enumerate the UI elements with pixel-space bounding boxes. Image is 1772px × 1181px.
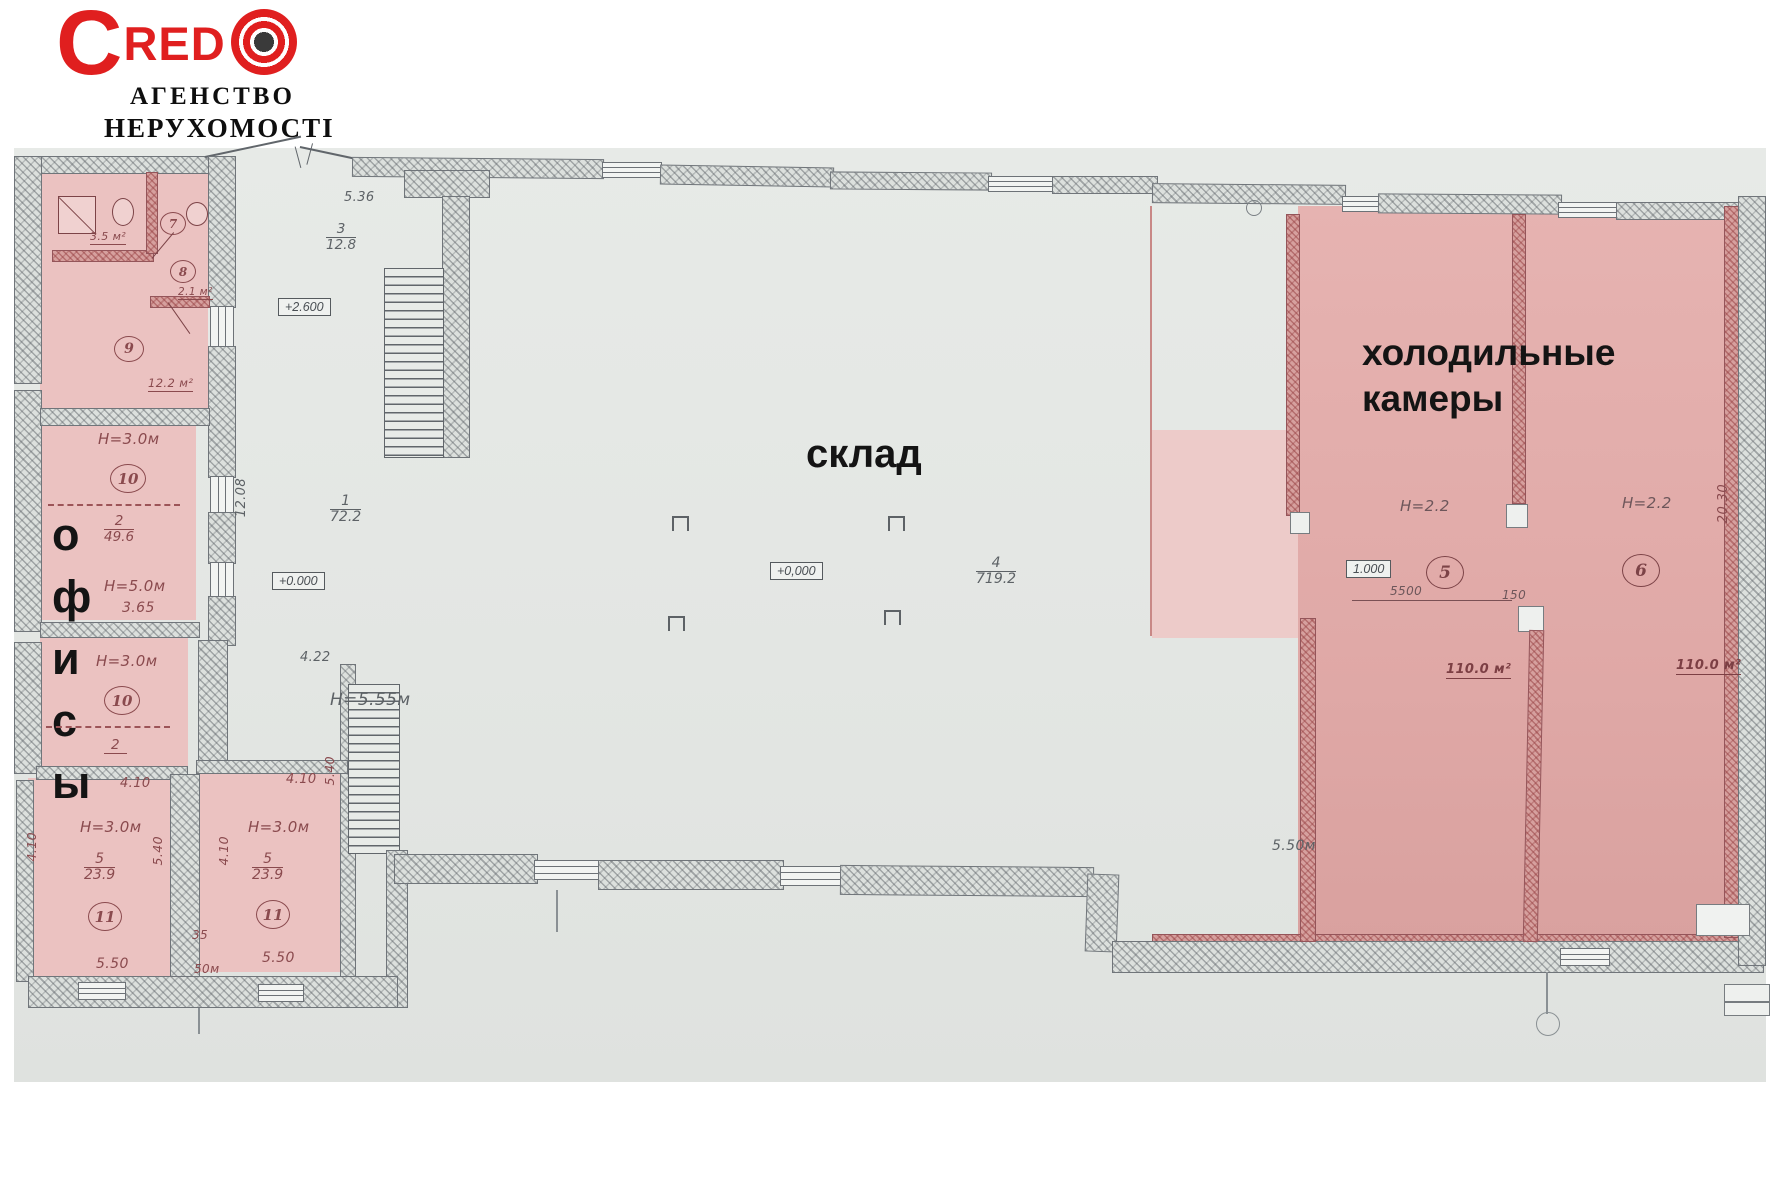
room-4-frac-num: 4 <box>976 556 1016 572</box>
room-11a-frac-den: 23.9 <box>84 868 115 883</box>
window-bottom-1 <box>78 982 126 1000</box>
offices-label: офисы <box>52 504 102 814</box>
axis-circle <box>1536 1012 1560 1036</box>
room-11b-right-dim: 5.40 <box>322 756 337 785</box>
cold-6-height: Н=2.2 <box>1622 494 1672 512</box>
agency-line2: НЕРУХОМОСТІ <box>104 113 356 144</box>
room-11a-number: 11 <box>88 902 122 931</box>
cold-strip-area <box>1152 430 1298 638</box>
column-mark-1 <box>672 516 689 531</box>
wall-bottom-m1 <box>394 854 538 884</box>
small-note-box-1 <box>1724 984 1770 1002</box>
room-4-fraction: 4 719.2 <box>976 556 1016 588</box>
partition-b-lower <box>1300 618 1316 942</box>
level-1000: 1.000 <box>1346 560 1391 578</box>
column-mark-3 <box>668 616 685 631</box>
bath-area-label: 3.5 м² <box>90 230 126 245</box>
window-mid-2 <box>210 476 234 514</box>
wall-top-3 <box>830 171 992 190</box>
room-11b-height: Н=3.0м <box>248 818 309 836</box>
column-a2 <box>1518 606 1544 632</box>
sink-icon <box>186 202 208 226</box>
axis-line-2 <box>556 890 558 932</box>
wall-stair-cap <box>404 170 490 198</box>
window-bottom-3 <box>534 860 602 880</box>
room-1-frac-num: 1 <box>330 494 361 510</box>
window-bottom-5 <box>1560 948 1610 966</box>
wall-mid-5 <box>198 640 228 774</box>
column-a <box>1506 504 1528 528</box>
room-10b-number: 10 <box>104 686 140 715</box>
room-10b-height: Н=3.0м <box>96 652 157 670</box>
wall-mid-3 <box>208 512 236 564</box>
shower-diagonal <box>59 197 95 233</box>
room-11a-bottom-dim: 5.50 <box>96 956 129 972</box>
mid-room-height: Н=5.0м <box>104 577 165 595</box>
dim-150: 150 <box>1502 588 1526 602</box>
wall-h-1 <box>40 408 210 426</box>
axis-line-3 <box>1546 972 1548 1014</box>
pillar-11 <box>170 774 200 980</box>
logo-letter-c: C <box>56 6 122 81</box>
wall-left-2 <box>14 390 42 632</box>
room-9-number: 9 <box>114 336 144 362</box>
room-7-number: 7 <box>160 212 186 235</box>
partition-b-upper <box>1286 214 1300 516</box>
room-11b-fraction: 5 23.9 <box>252 852 283 884</box>
wall-right <box>1738 196 1766 966</box>
window-top-1 <box>602 162 662 178</box>
cold-label-line2: камеры <box>1362 378 1503 420</box>
room-11b-top-dim: 4.10 <box>286 772 317 787</box>
column-b <box>1290 512 1310 534</box>
wall-left-3 <box>14 642 42 774</box>
window-top-3 <box>1342 196 1382 212</box>
room-11b-left-dim: 4.10 <box>216 836 231 865</box>
room-11a-left-dim: 4.10 <box>24 832 39 861</box>
window-mid-1 <box>210 306 234 348</box>
small-note-box-2 <box>1724 1002 1770 1016</box>
wall-bottom-m3 <box>840 865 1094 897</box>
room-3-frac-den: 12.8 <box>326 238 356 253</box>
staircase-upper <box>384 268 444 458</box>
room-8-number: 8 <box>170 260 196 283</box>
room-5-area: 110.0 м² <box>1446 662 1511 679</box>
level-zero-mid: +0,000 <box>770 562 823 580</box>
cold-dim-line <box>1352 600 1512 601</box>
wall-bottom-m2 <box>598 860 784 890</box>
window-bottom-2 <box>258 984 304 1002</box>
porch-width-dim: 5.36 <box>344 190 375 205</box>
logo-brand: C RED <box>56 6 356 81</box>
wall-top-bath <box>40 156 214 174</box>
wall-bottom-right <box>1112 941 1764 973</box>
room-10a-frac-den: 49.6 <box>104 530 134 545</box>
bullseye-icon <box>231 9 297 75</box>
room-11a-right-dim: 5.40 <box>150 836 165 865</box>
dim-20-30: 20.30 <box>1716 484 1731 523</box>
room-3-fraction: 3 12.8 <box>326 222 356 253</box>
dim-4-22: 4.22 <box>300 650 331 665</box>
window-mid-3 <box>210 562 234 598</box>
cold-label-line1: холодильные <box>1362 332 1615 374</box>
room-10a-number: 10 <box>110 464 146 493</box>
room-10b-frac-num: 2 <box>104 738 127 754</box>
logo-letters-red: RED <box>123 16 225 71</box>
pillar-depth-dim: 50м <box>194 962 220 976</box>
room-10a-frac-num: 2 <box>104 514 134 530</box>
wall-bath-2 <box>146 172 158 254</box>
dim-12-08: 12.08 <box>234 478 249 517</box>
room-1-fraction: 1 72.2 <box>330 494 361 526</box>
room-11a-height: Н=3.0м <box>80 818 141 836</box>
door-circle-mark <box>1246 200 1262 216</box>
warehouse-height: Н=5.55м <box>330 690 411 710</box>
window-top-2 <box>988 176 1054 192</box>
column-mark-4 <box>884 610 901 625</box>
room-5-number: 5 <box>1426 556 1464 589</box>
small-corner-box <box>1696 904 1750 936</box>
wall-top-4 <box>1052 176 1158 194</box>
cold-boundary-line <box>1150 206 1152 636</box>
window-top-4 <box>1558 202 1620 218</box>
room-1-frac-den: 72.2 <box>330 510 361 525</box>
toilet-icon <box>112 198 134 226</box>
room-10a-height: Н=3.0м <box>98 430 159 448</box>
agency-line1: АГЕНСТВО <box>130 83 356 111</box>
room-3-frac-num: 3 <box>326 222 356 238</box>
room-11b-number: 11 <box>256 900 290 929</box>
wall-top-2 <box>660 164 834 187</box>
axis-line-1 <box>198 1008 200 1034</box>
wall-bath-1 <box>52 250 154 262</box>
room-11b-frac-den: 23.9 <box>252 868 283 883</box>
cold-5-height: Н=2.2 <box>1400 497 1450 515</box>
shower-tray-icon <box>58 196 96 234</box>
warehouse-label: склад <box>806 432 922 477</box>
floor-plan-page: C RED АГЕНСТВО НЕРУХОМОСТІ <box>0 0 1772 1181</box>
room-11a-top-dim: 4.10 <box>120 776 151 791</box>
mid-room-dim: 3.65 <box>122 600 155 616</box>
wall-stair-right <box>442 196 470 458</box>
wall-top-6 <box>1378 193 1562 214</box>
room-11b-bottom-dim: 5.50 <box>262 950 295 966</box>
wall-left-4 <box>16 780 34 982</box>
room-10a-dash <box>48 504 180 506</box>
wall-left-1 <box>14 156 42 384</box>
credo-logo: C RED АГЕНСТВО НЕРУХОМОСТІ <box>56 6 356 144</box>
dim-5500: 5500 <box>1390 584 1422 598</box>
dim-5-50m: 5.50м <box>1272 838 1316 854</box>
room-11a-frac-num: 5 <box>84 852 115 868</box>
room-4-frac-den: 719.2 <box>976 572 1016 587</box>
room-11a-fraction: 5 23.9 <box>84 852 115 884</box>
level-zero-left: +0.000 <box>272 572 325 590</box>
room-6-number: 6 <box>1622 554 1660 587</box>
room-10a-fraction: 2 49.6 <box>104 514 134 545</box>
pillar-width-dim: 35 <box>192 928 208 942</box>
room-10b-fraction: 2 <box>104 738 127 754</box>
window-bottom-4 <box>780 866 844 886</box>
column-mark-2 <box>888 516 905 531</box>
room-6-area: 110.0 м² <box>1676 658 1741 675</box>
room-9-area: 12.2 м² <box>148 376 193 392</box>
level-plus-2600: +2.600 <box>278 298 331 316</box>
wall-mid-2 <box>208 346 236 478</box>
room-8-area: 2.1 м² <box>178 286 213 300</box>
wall-mid-4 <box>208 596 236 646</box>
room-11b-frac-num: 5 <box>252 852 283 868</box>
room-10b-dash <box>46 726 170 728</box>
